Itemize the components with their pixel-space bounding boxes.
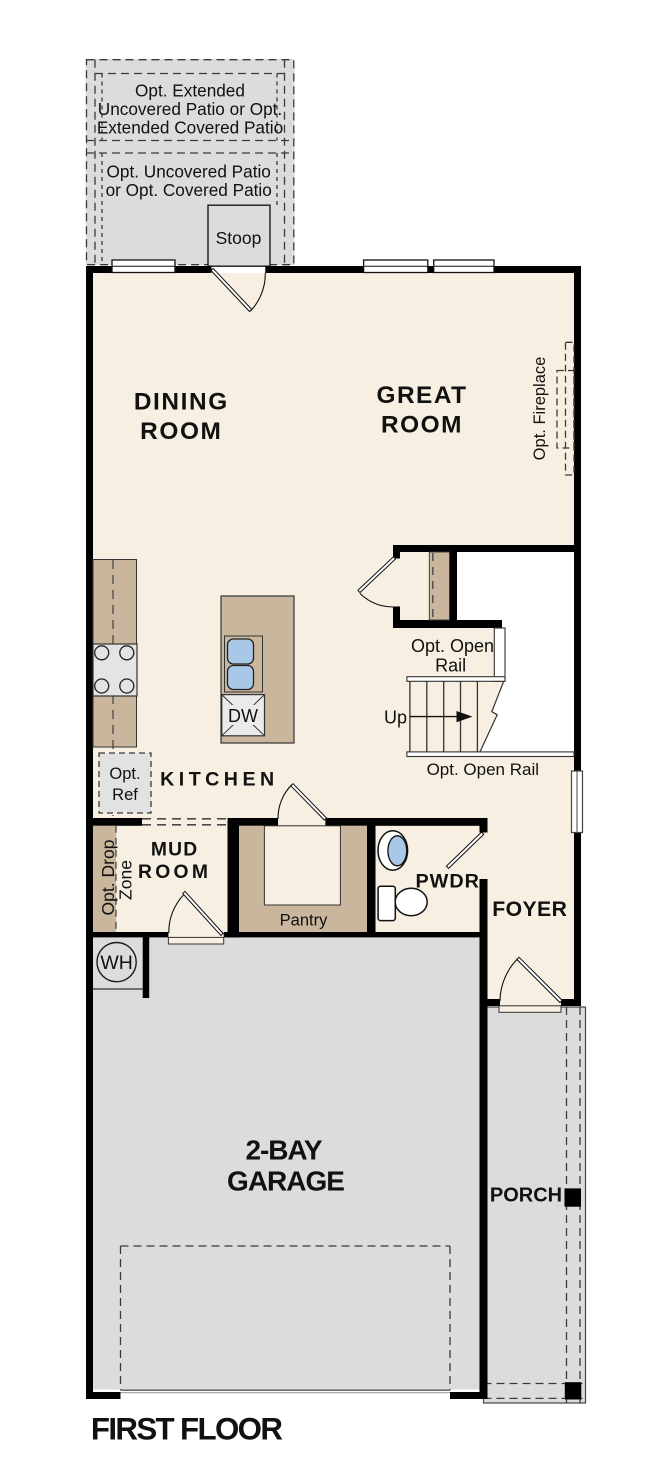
svg-text:Zone: Zone bbox=[116, 860, 136, 900]
svg-text:Pantry: Pantry bbox=[280, 912, 328, 930]
svg-text:PWDR: PWDR bbox=[415, 871, 479, 893]
svg-text:Opt. Extended: Opt. Extended bbox=[135, 81, 245, 101]
svg-text:Opt. Open: Opt. Open bbox=[411, 636, 494, 656]
svg-text:Opt.: Opt. bbox=[109, 765, 140, 783]
svg-text:Opt. Fireplace: Opt. Fireplace bbox=[531, 357, 549, 461]
svg-text:FOYER: FOYER bbox=[492, 898, 567, 921]
svg-text:Uncovered Patio or Opt.: Uncovered Patio or Opt. bbox=[98, 99, 282, 119]
svg-text:or Opt. Covered Patio: or Opt. Covered Patio bbox=[106, 180, 272, 200]
svg-text:DW: DW bbox=[228, 706, 258, 726]
svg-text:Rail: Rail bbox=[435, 656, 466, 676]
svg-text:MUD: MUD bbox=[151, 839, 199, 860]
svg-text:PORCH: PORCH bbox=[490, 1185, 562, 1207]
svg-text:KITCHEN: KITCHEN bbox=[160, 769, 279, 791]
svg-text:GREAT: GREAT bbox=[376, 382, 467, 409]
svg-text:Extended Covered Patio: Extended Covered Patio bbox=[97, 118, 283, 138]
svg-text:Opt. Open Rail: Opt. Open Rail bbox=[427, 760, 539, 779]
svg-text:2-BAY: 2-BAY bbox=[246, 1134, 323, 1165]
svg-text:Up: Up bbox=[384, 708, 407, 728]
svg-text:WH: WH bbox=[100, 952, 133, 974]
svg-text:ROOM: ROOM bbox=[140, 418, 222, 445]
svg-text:Ref: Ref bbox=[112, 786, 138, 804]
svg-text:GARAGE: GARAGE bbox=[227, 1166, 344, 1197]
svg-text:ROOM: ROOM bbox=[381, 412, 463, 439]
svg-text:Stoop: Stoop bbox=[216, 228, 262, 248]
svg-text:FIRST FLOOR: FIRST FLOOR bbox=[91, 1412, 282, 1447]
svg-text:DINING: DINING bbox=[134, 389, 229, 416]
svg-text:ROOM: ROOM bbox=[138, 862, 211, 883]
svg-text:Opt. Uncovered Patio: Opt. Uncovered Patio bbox=[107, 162, 271, 182]
